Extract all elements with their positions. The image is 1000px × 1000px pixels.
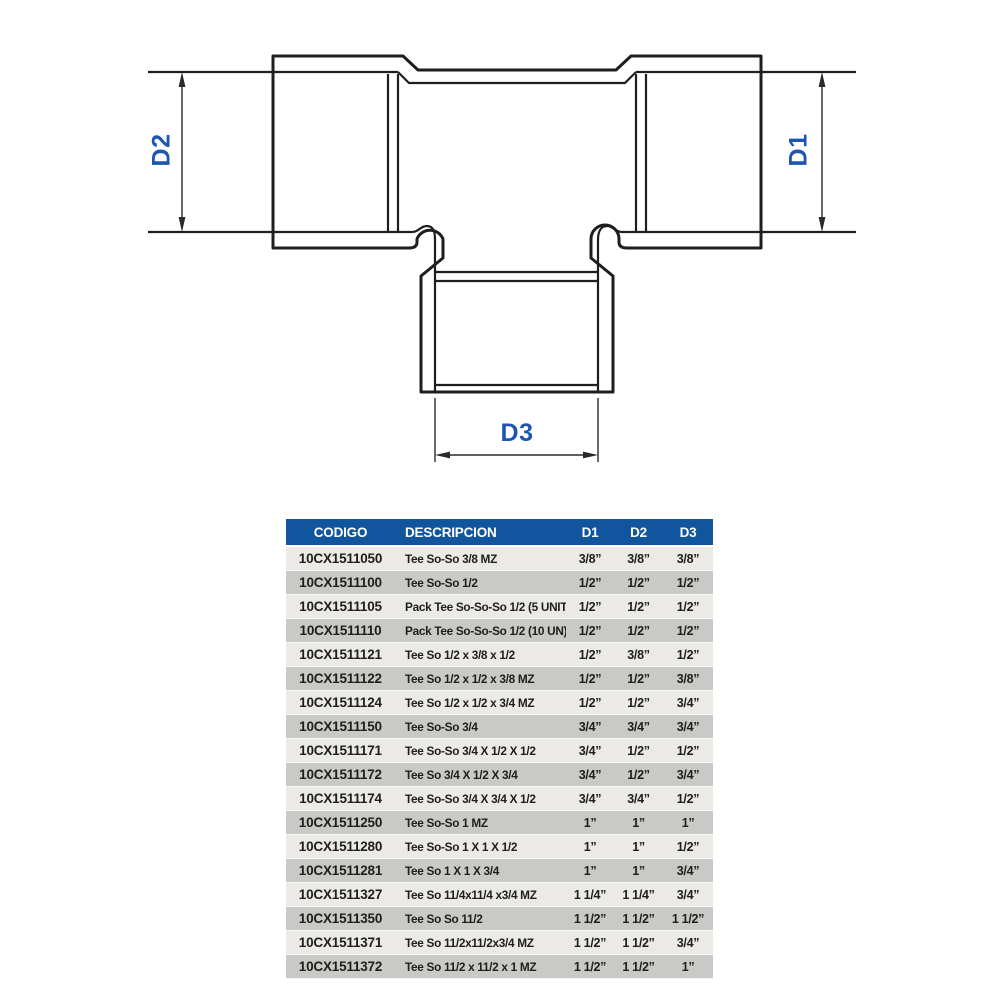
cell-codigo: 10CX1511110: [286, 619, 395, 643]
cell-descripcion: Tee So 1/2 x 1/2 x 3/8 MZ: [395, 667, 566, 691]
arrow-up-icon: [819, 72, 826, 87]
cell-codigo: 10CX1511105: [286, 595, 395, 619]
cell-codigo: 10CX1511150: [286, 715, 395, 739]
table-row: 10CX1511172Tee So 3/4 X 1/2 X 3/43/4”1/2…: [286, 763, 713, 787]
cell-codigo: 10CX1511371: [286, 931, 395, 955]
cell-d3: 3/4”: [663, 931, 713, 955]
cell-d1: 3/4”: [566, 787, 614, 811]
cell-d2: 1/2”: [614, 691, 663, 715]
cell-d2: 1 1/2”: [614, 907, 663, 931]
cell-descripcion: Tee So-So 1 MZ: [395, 811, 566, 835]
cell-d2: 1 1/2”: [614, 931, 663, 955]
cell-d1: 3/4”: [566, 739, 614, 763]
cell-d2: 3/4”: [614, 787, 663, 811]
cell-d2: 1”: [614, 859, 663, 883]
arrow-down-icon: [819, 217, 826, 232]
cell-descripcion: Tee So 11/2x11/2x3/4 MZ: [395, 931, 566, 955]
cell-d3: 1/2”: [663, 787, 713, 811]
cell-d1: 3/4”: [566, 715, 614, 739]
cell-d3: 1”: [663, 811, 713, 835]
table-row: 10CX1511121Tee So 1/2 x 3/8 x 1/21/2”3/8…: [286, 643, 713, 667]
cell-d1: 1”: [566, 859, 614, 883]
cell-d1: 1 1/2”: [566, 907, 614, 931]
cell-d2: 1/2”: [614, 571, 663, 595]
header-d1: D1: [566, 519, 614, 546]
cell-d2: 1 1/2”: [614, 955, 663, 979]
table-row: 10CX1511150Tee So-So 3/43/4”3/4”3/4”: [286, 715, 713, 739]
header-d3: D3: [663, 519, 713, 546]
cell-codigo: 10CX1511350: [286, 907, 395, 931]
table-row: 10CX1511100Tee So-So 1/21/2”1/2”1/2”: [286, 571, 713, 595]
cell-d1: 1/2”: [566, 571, 614, 595]
cell-codigo: 10CX1511171: [286, 739, 395, 763]
cell-d2: 1 1/4”: [614, 883, 663, 907]
cell-d3: 3/4”: [663, 691, 713, 715]
table-row: 10CX1511280Tee So-So 1 X 1 X 1/21”1”1/2”: [286, 835, 713, 859]
cell-descripcion: Tee So 1/2 x 1/2 x 3/4 MZ: [395, 691, 566, 715]
header-codigo: CODIGO: [286, 519, 395, 546]
cell-descripcion: Pack Tee So-So-So 1/2 (5 UNITS): [395, 595, 566, 619]
table-row: 10CX1511124Tee So 1/2 x 1/2 x 3/4 MZ1/2”…: [286, 691, 713, 715]
cell-d3: 1/2”: [663, 619, 713, 643]
arrow-right-icon: [583, 452, 598, 459]
cell-descripcion: Tee So-So 3/4 X 3/4 X 1/2: [395, 787, 566, 811]
cell-d1: 1/2”: [566, 667, 614, 691]
cell-d2: 1/2”: [614, 619, 663, 643]
cell-d2: 3/4”: [614, 715, 663, 739]
header-descripcion: DESCRIPCION: [395, 519, 566, 546]
cell-d1: 1 1/4”: [566, 883, 614, 907]
cell-codigo: 10CX1511372: [286, 955, 395, 979]
socket-stop-right: [636, 74, 646, 231]
cell-descripcion: Tee So 11/2 x 11/2 x 1 MZ: [395, 955, 566, 979]
branch-socket-stop: [435, 272, 598, 281]
table-body: 10CX1511050Tee So-So 3/8 MZ3/8”3/8”3/8”1…: [286, 546, 713, 979]
tee-fitting-drawing: D2 D1 D3: [0, 0, 1000, 500]
cell-d2: 1”: [614, 835, 663, 859]
cell-codigo: 10CX1511172: [286, 763, 395, 787]
d1-label: D1: [785, 134, 813, 167]
socket-stop-left: [388, 74, 398, 231]
cell-d2: 1/2”: [614, 595, 663, 619]
cell-d2: 3/8”: [614, 643, 663, 667]
cell-d3: 3/8”: [663, 667, 713, 691]
cell-d3: 1/2”: [663, 835, 713, 859]
cell-codigo: 10CX1511281: [286, 859, 395, 883]
cell-descripcion: Tee So-So 3/4: [395, 715, 566, 739]
dimension-d3: D3: [435, 398, 598, 462]
dimension-d2: D2: [148, 72, 186, 232]
cell-d1: 1/2”: [566, 595, 614, 619]
table-row: 10CX1511327Tee So 11/4x11/4 x3/4 MZ1 1/4…: [286, 883, 713, 907]
cell-d3: 1”: [663, 955, 713, 979]
cell-d3: 1 1/2”: [663, 907, 713, 931]
cell-d1: 1 1/2”: [566, 931, 614, 955]
table-row: 10CX1511281Tee So 1 X 1 X 3/41”1”3/4”: [286, 859, 713, 883]
spec-table: CODIGO DESCRIPCION D1 D2 D3 10CX1511050T…: [286, 519, 713, 979]
cell-d3: 3/4”: [663, 883, 713, 907]
cell-d1: 1/2”: [566, 619, 614, 643]
cell-d3: 1/2”: [663, 595, 713, 619]
cell-descripcion: Tee So-So 3/4 X 1/2 X 1/2: [395, 739, 566, 763]
cell-descripcion: Tee So So 11/2: [395, 907, 566, 931]
cell-codigo: 10CX1511327: [286, 883, 395, 907]
table-row: 10CX1511372Tee So 11/2 x 11/2 x 1 MZ1 1/…: [286, 955, 713, 979]
cell-d1: 1”: [566, 811, 614, 835]
table-row: 10CX1511371Tee So 11/2x11/2x3/4 MZ1 1/2”…: [286, 931, 713, 955]
cell-codigo: 10CX1511174: [286, 787, 395, 811]
cell-d1: 1”: [566, 835, 614, 859]
cell-codigo: 10CX1511050: [286, 546, 395, 571]
cell-d3: 3/4”: [663, 715, 713, 739]
d3-label: D3: [501, 419, 534, 447]
cell-descripcion: Tee So-So 3/8 MZ: [395, 546, 566, 571]
cell-d2: 1”: [614, 811, 663, 835]
cell-d1: 1 1/2”: [566, 955, 614, 979]
cell-descripcion: Tee So 3/4 X 1/2 X 3/4: [395, 763, 566, 787]
cell-d1: 1/2”: [566, 691, 614, 715]
cell-d2: 1/2”: [614, 739, 663, 763]
table-row: 10CX1511171Tee So-So 3/4 X 1/2 X 1/23/4”…: [286, 739, 713, 763]
cell-d3: 3/4”: [663, 763, 713, 787]
table-row: 10CX1511050Tee So-So 3/8 MZ3/8”3/8”3/8”: [286, 546, 713, 571]
cell-codigo: 10CX1511250: [286, 811, 395, 835]
cell-descripcion: Pack Tee So-So-So 1/2 (10 UN): [395, 619, 566, 643]
fillet-inner-left: [412, 226, 435, 392]
cell-descripcion: Tee So 11/4x11/4 x3/4 MZ: [395, 883, 566, 907]
cell-codigo: 10CX1511121: [286, 643, 395, 667]
arrow-down-icon: [179, 217, 186, 232]
cell-d3: 3/8”: [663, 546, 713, 571]
header-d2: D2: [614, 519, 663, 546]
catalog-page: D2 D1 D3 CODIGO DESCRIPCION D1: [0, 0, 1000, 1000]
dimension-d1: D1: [785, 72, 826, 232]
table-row: 10CX1511350Tee So So 11/21 1/2”1 1/2”1 1…: [286, 907, 713, 931]
cell-descripcion: Tee So-So 1/2: [395, 571, 566, 595]
cell-codigo: 10CX1511100: [286, 571, 395, 595]
table-row: 10CX1511110Pack Tee So-So-So 1/2 (10 UN)…: [286, 619, 713, 643]
arrow-up-icon: [179, 72, 186, 87]
cell-d3: 1/2”: [663, 643, 713, 667]
table-row: 10CX1511174Tee So-So 3/4 X 3/4 X 1/23/4”…: [286, 787, 713, 811]
arrow-left-icon: [435, 452, 450, 459]
cell-d3: 1/2”: [663, 571, 713, 595]
cell-d1: 1/2”: [566, 643, 614, 667]
table-row: 10CX1511250Tee So-So 1 MZ1”1”1”: [286, 811, 713, 835]
cell-descripcion: Tee So 1 X 1 X 3/4: [395, 859, 566, 883]
cell-d2: 1/2”: [614, 763, 663, 787]
cell-codigo: 10CX1511124: [286, 691, 395, 715]
table-row: 10CX1511105Pack Tee So-So-So 1/2 (5 UNIT…: [286, 595, 713, 619]
cell-codigo: 10CX1511122: [286, 667, 395, 691]
cell-d2: 3/8”: [614, 546, 663, 571]
cell-d2: 1/2”: [614, 667, 663, 691]
cell-d3: 3/4”: [663, 859, 713, 883]
d2-label: D2: [148, 134, 176, 167]
cell-codigo: 10CX1511280: [286, 835, 395, 859]
table-header: CODIGO DESCRIPCION D1 D2 D3: [286, 519, 713, 546]
cell-descripcion: Tee So-So 1 X 1 X 1/2: [395, 835, 566, 859]
table-row: 10CX1511122Tee So 1/2 x 1/2 x 3/8 MZ1/2”…: [286, 667, 713, 691]
body-inner-top: [398, 72, 636, 83]
tee-outer-contour: [273, 56, 761, 392]
cell-d3: 1/2”: [663, 739, 713, 763]
fillet-inner-right: [598, 226, 622, 392]
cell-d1: 3/4”: [566, 763, 614, 787]
cell-d1: 3/8”: [566, 546, 614, 571]
cell-descripcion: Tee So 1/2 x 3/8 x 1/2: [395, 643, 566, 667]
